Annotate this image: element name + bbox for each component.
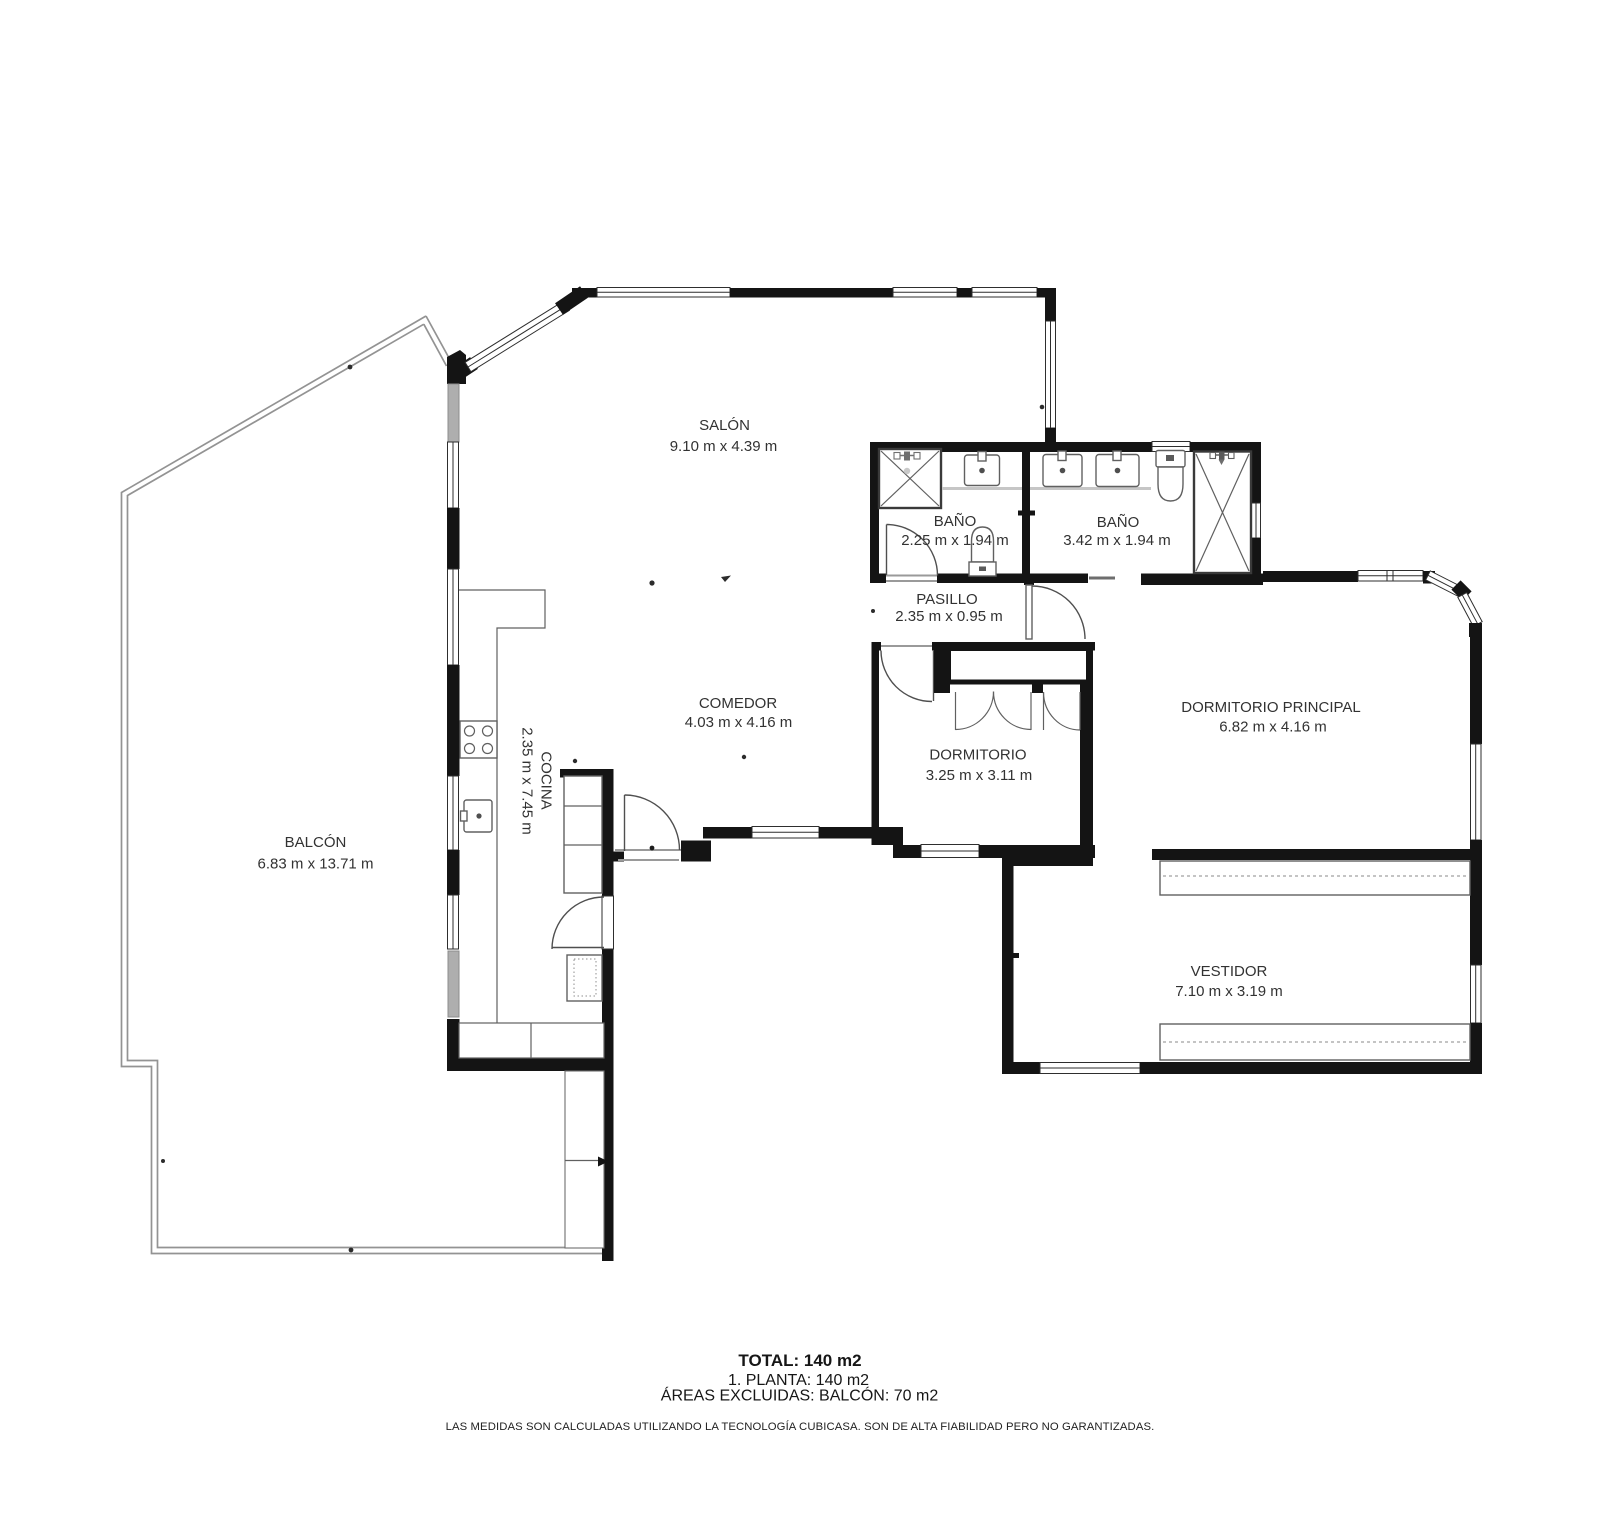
svg-text:COCINA: COCINA (538, 751, 555, 809)
svg-text:DORMITORIO PRINCIPAL: DORMITORIO PRINCIPAL (1181, 699, 1360, 716)
svg-text:2.25 m x 1.94 m: 2.25 m x 1.94 m (901, 532, 1009, 549)
svg-text:BAÑO: BAÑO (1097, 514, 1140, 531)
svg-text:BALCÓN: BALCÓN (285, 834, 347, 851)
svg-text:9.10 m x 4.39 m: 9.10 m x 4.39 m (670, 438, 778, 455)
svg-text:TOTAL: 140 m2: TOTAL: 140 m2 (738, 1351, 861, 1370)
svg-text:BAÑO: BAÑO (934, 513, 977, 530)
svg-text:DORMITORIO: DORMITORIO (929, 747, 1026, 764)
svg-text:COMEDOR: COMEDOR (699, 695, 778, 712)
svg-text:1. PLANTA: 140 m2: 1. PLANTA: 140 m2 (728, 1372, 869, 1389)
svg-text:2.35 m x 0.95 m: 2.35 m x 0.95 m (895, 608, 1003, 625)
svg-text:6.83 m x 13.71 m: 6.83 m x 13.71 m (258, 856, 374, 873)
svg-text:VESTIDOR: VESTIDOR (1191, 963, 1268, 980)
svg-text:6.82 m x 4.16 m: 6.82 m x 4.16 m (1219, 719, 1327, 736)
svg-text:SALÓN: SALÓN (699, 417, 750, 434)
svg-text:3.25 m x 3.11 m: 3.25 m x 3.11 m (926, 767, 1032, 784)
svg-text:4.03 m x 4.16 m: 4.03 m x 4.16 m (685, 714, 793, 731)
svg-text:7.10 m x 3.19 m: 7.10 m x 3.19 m (1175, 983, 1283, 1000)
svg-text:3.42 m x 1.94 m: 3.42 m x 1.94 m (1063, 532, 1171, 549)
svg-text:2.35 m x 7.45 m: 2.35 m x 7.45 m (519, 727, 536, 835)
svg-text:PASILLO: PASILLO (916, 591, 977, 608)
svg-text:ÁREAS EXCLUIDAS: BALCÓN: 70 m2: ÁREAS EXCLUIDAS: BALCÓN: 70 m2 (661, 1386, 939, 1405)
svg-text:LAS MEDIDAS SON CALCULADAS UTI: LAS MEDIDAS SON CALCULADAS UTILIZANDO LA… (446, 1420, 1155, 1433)
